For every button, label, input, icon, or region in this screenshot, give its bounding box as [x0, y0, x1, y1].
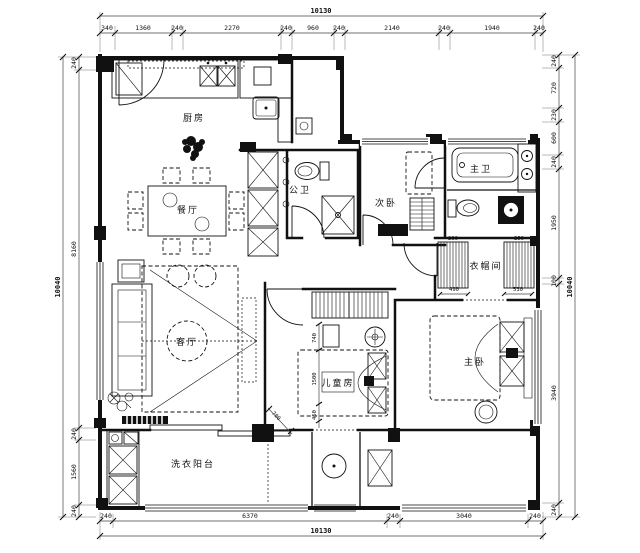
dim-right-7: 3940: [550, 385, 558, 401]
dim-top-1: 1360: [135, 24, 151, 32]
dim-top-5: 960: [307, 24, 319, 32]
room-label-dining: 餐厅: [177, 204, 199, 216]
room-label-kids: 儿童房: [321, 377, 354, 389]
dim-right-6: 100: [550, 275, 558, 287]
room-kitchen: 厨房: [112, 60, 312, 256]
dim-right-3: 600: [550, 132, 558, 144]
dim-ward-right: 250: [514, 236, 524, 242]
floor-plan-canvas: 10130 340 1360 240 2270 240 960 240 2140…: [0, 0, 640, 553]
dim-bottom-2: 240: [387, 512, 399, 520]
dim-left-2: 240: [70, 428, 78, 440]
room-guest-bath: 公卫: [289, 162, 354, 234]
room-master-bath: 主卫: [448, 144, 536, 224]
dim-left-total: 10040: [54, 276, 62, 297]
dim-bottom-4: 240: [529, 512, 541, 520]
dim-top-10: 240: [533, 24, 545, 32]
plant-icon: [182, 136, 205, 161]
dim-bottom-3: 3040: [456, 512, 472, 520]
room-label-laundry: 洗衣阳台: [171, 458, 215, 470]
dimension-annotations: 10130 340 1360 240 2270 240 960 240 2140…: [54, 7, 580, 540]
floor-plan-svg: 10130 340 1360 240 2270 240 960 240 2140…: [0, 0, 640, 553]
dim-right-2: 230: [550, 109, 558, 121]
room-label-kitchen: 厨房: [183, 112, 205, 124]
room-closet: 490 530 290 250 衣帽间: [438, 236, 534, 296]
room-living: 客厅: [108, 260, 257, 424]
dim-kids-a: 740: [312, 333, 318, 343]
dim-closet-right: 530: [513, 287, 523, 293]
dim-top-9: 1940: [484, 24, 500, 32]
room-label-master-bedroom: 主卧: [464, 356, 486, 368]
dim-kids-c: 450: [312, 410, 318, 420]
dim-top-total: 10130: [310, 7, 331, 15]
windows: [95, 61, 543, 513]
room-label-closet: 衣帽间: [469, 260, 502, 272]
dim-kids-b: 1500: [312, 372, 318, 385]
room-label-second-bedroom: 次卧: [375, 197, 397, 209]
dim-top-2: 240: [171, 24, 183, 32]
dim-bottom-0: 240: [100, 512, 112, 520]
dim-bottom-total: 10130: [310, 527, 331, 535]
dim-right-1: 720: [550, 82, 558, 94]
dim-right-5: 1950: [550, 215, 558, 231]
dim-left-4: 240: [70, 505, 78, 517]
dim-top-0: 340: [101, 24, 113, 32]
dim-ward-left: 290: [448, 236, 458, 242]
walls: [94, 54, 538, 508]
room-laundry: 洗衣阳台: [107, 430, 215, 508]
room-dining: 餐厅: [128, 168, 244, 254]
dim-top-7: 2140: [384, 24, 400, 32]
dim-top-4: 240: [280, 24, 292, 32]
room-label-guest-bath: 公卫: [289, 185, 311, 196]
dim-right-total: 10040: [566, 276, 574, 297]
room-label-master-bath: 主卫: [470, 163, 492, 175]
dim-top-3: 2270: [224, 24, 240, 32]
dim-top-6: 240: [333, 24, 345, 32]
dim-left-0: 240: [70, 57, 78, 69]
dim-left-1: 8160: [70, 241, 78, 257]
dim-closet-left: 490: [449, 287, 459, 293]
room-label-living: 客厅: [176, 336, 198, 348]
dim-left-3: 1560: [70, 464, 78, 480]
dim-right-8: 240: [550, 504, 558, 516]
dim-right-4: 240: [550, 156, 558, 168]
dim-top-8: 240: [438, 24, 450, 32]
room-master-bedroom: 主卧: [368, 316, 532, 486]
dim-right-0: 240: [550, 55, 558, 67]
dim-bottom-1: 6370: [242, 512, 258, 520]
